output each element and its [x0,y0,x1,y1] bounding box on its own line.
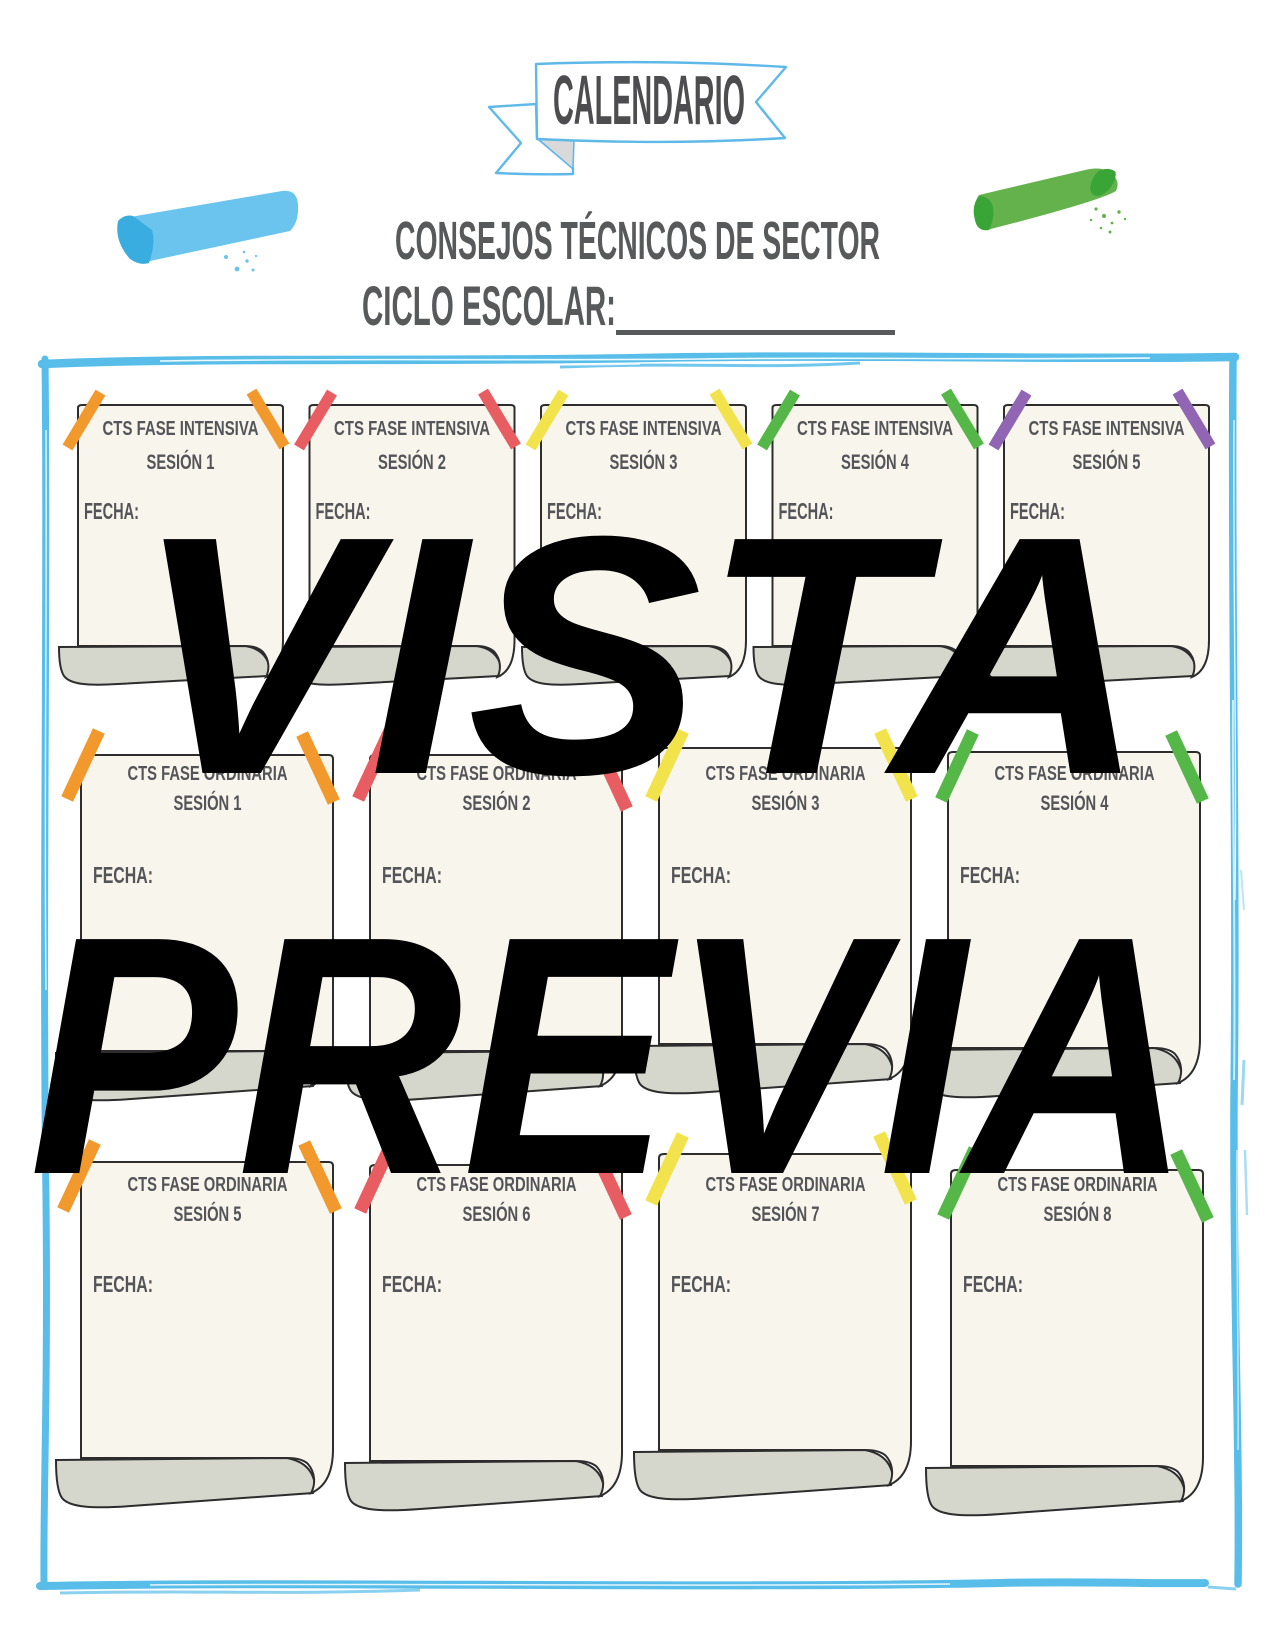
svg-text:FECHA:: FECHA: [84,498,139,524]
svg-text:FECHA:: FECHA: [93,1271,153,1297]
svg-text:CTS FASE INTENSIVA: CTS FASE INTENSIVA [566,418,722,440]
svg-text:CTS FASE INTENSIVA: CTS FASE INTENSIVA [334,418,490,440]
svg-text:CONSEJOS TÉCNICOS DE SECTOR: CONSEJOS TÉCNICOS DE SECTOR [395,211,880,271]
svg-text:CTS FASE INTENSIVA: CTS FASE INTENSIVA [103,418,259,440]
svg-text:FECHA:: FECHA: [382,1271,442,1297]
svg-text:CICLO ESCOLAR:: CICLO ESCOLAR: [362,274,616,337]
svg-text:FECHA:: FECHA: [963,1271,1023,1297]
svg-text:CALENDARIO: CALENDARIO [553,61,745,139]
svg-text:FECHA:: FECHA: [671,1271,731,1297]
svg-text:CTS FASE INTENSIVA: CTS FASE INTENSIVA [1029,418,1185,440]
svg-text:CTS FASE INTENSIVA: CTS FASE INTENSIVA [797,418,953,440]
svg-text:VISTA: VISTA [134,466,1146,846]
svg-text:PREVIA: PREVIA [29,866,1191,1246]
